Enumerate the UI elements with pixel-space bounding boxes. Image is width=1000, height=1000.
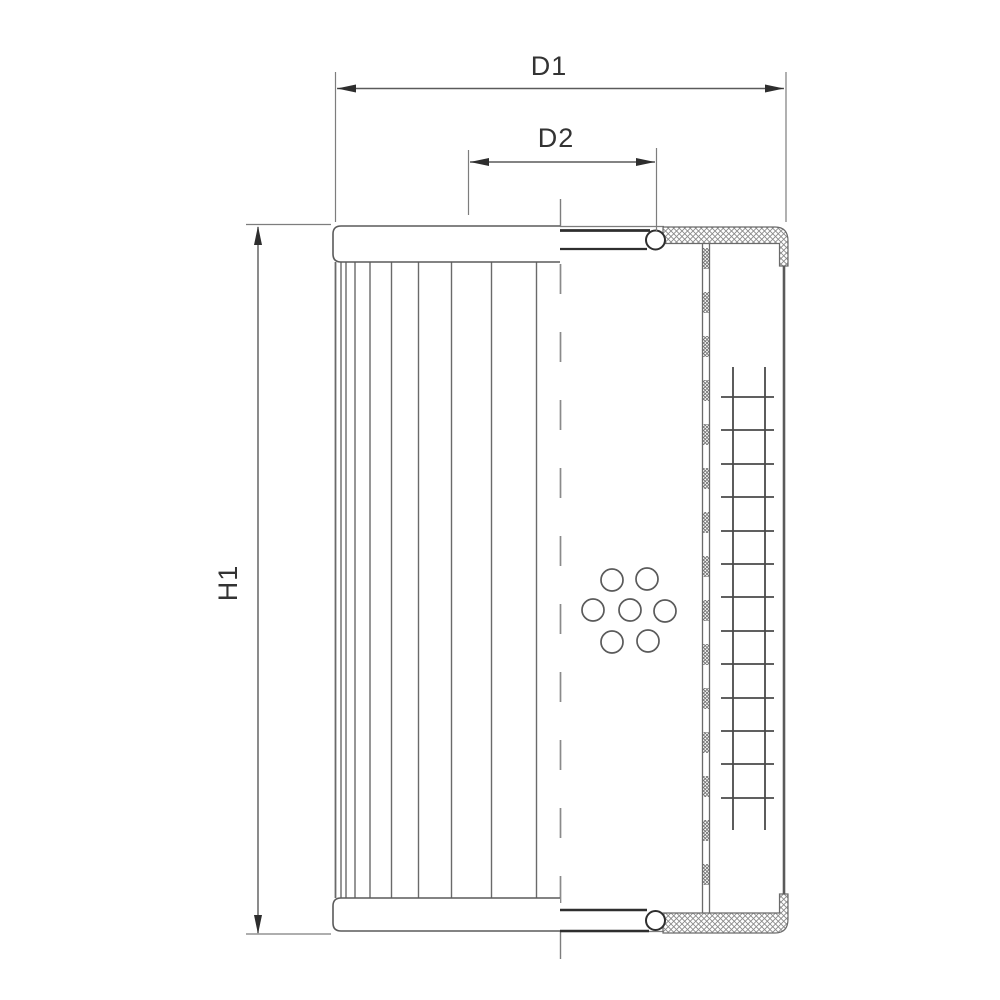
o-ring-top xyxy=(646,231,665,250)
dimension-label-h1: H1 xyxy=(213,565,243,602)
perforation-hole xyxy=(654,600,676,622)
core-hatch-block xyxy=(703,556,710,577)
core-hatch-block xyxy=(703,776,710,797)
perforation-hole xyxy=(582,599,604,621)
perforation-hole xyxy=(601,631,623,653)
core-hatch-block xyxy=(703,688,710,709)
perforation-hole xyxy=(619,599,641,621)
perforation-hole xyxy=(601,569,623,591)
core-hatch-block xyxy=(703,512,710,533)
bottom-cap-outline xyxy=(333,898,560,931)
core-hatch-block xyxy=(703,424,710,445)
perforation-hole xyxy=(636,568,658,590)
core-hatch-block xyxy=(703,864,710,885)
dimension-label-d2: D2 xyxy=(538,123,575,153)
core-hatch-block xyxy=(703,336,710,357)
core-hatch-block xyxy=(703,248,710,269)
drawing-background xyxy=(0,0,1000,1000)
filter-element-technical-drawing: D1 D2 H1 xyxy=(0,0,1000,1000)
core-hatch-block xyxy=(703,644,710,665)
core-tube-hatch-blocks xyxy=(703,248,710,885)
o-ring-bottom xyxy=(646,911,665,930)
core-hatch-block xyxy=(703,732,710,753)
core-hatch-block xyxy=(703,820,710,841)
core-hatch-block xyxy=(703,380,710,401)
core-hatch-block xyxy=(703,600,710,621)
core-hatch-block xyxy=(703,292,710,313)
core-hatch-block xyxy=(703,468,710,489)
perforation-hole xyxy=(637,630,659,652)
top-cap-outline xyxy=(333,226,560,262)
dimension-label-d1: D1 xyxy=(531,51,568,81)
drawing-page: D1 D2 H1 xyxy=(0,0,1000,1000)
